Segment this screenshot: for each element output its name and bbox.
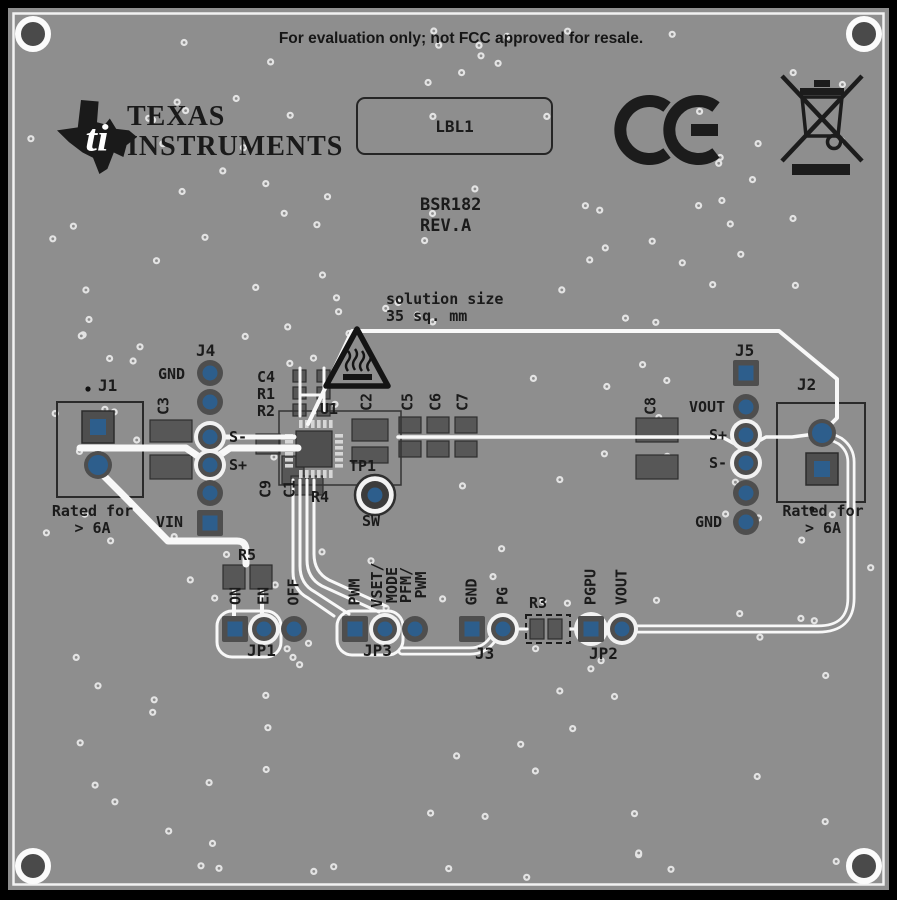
- pad-j5-s-minus: [730, 447, 762, 479]
- pad-j4-2: [197, 389, 223, 415]
- label-c1: C1: [283, 480, 298, 498]
- label-c9: C9: [259, 480, 274, 498]
- logo-wordmark-line2: INSTRUMENTS: [127, 131, 343, 163]
- pad-j4-s-plus: [194, 449, 226, 481]
- component-c8b: [636, 455, 678, 479]
- label-vout-row: VOUT: [615, 569, 630, 605]
- label-j5-vout: VOUT: [689, 399, 725, 416]
- label-j4-s-minus: S-: [229, 429, 247, 446]
- label-vin: VIN: [156, 514, 183, 531]
- pad-j4-vin: [197, 510, 223, 536]
- label-pgpu: PGPU: [584, 569, 599, 605]
- label-r4: R4: [311, 489, 329, 506]
- label-r5: R5: [238, 547, 256, 564]
- solution-size-note: solution size 35 sq. mm: [386, 291, 503, 325]
- label-j5: J5: [735, 342, 754, 359]
- pad-j4-s-minus: [194, 421, 226, 453]
- label-r3: R3: [529, 595, 547, 612]
- pad-j4-gnd: [197, 360, 223, 386]
- label-j5-s-plus: S+: [709, 427, 727, 444]
- label-c2: C2: [360, 393, 375, 411]
- component-r3: [530, 619, 544, 639]
- pad-j5-1: [733, 360, 759, 386]
- label-box: LBL1: [356, 97, 553, 155]
- label-tp1: TP1: [349, 458, 376, 475]
- pad-vout: [606, 613, 638, 645]
- label-r1: R1: [257, 386, 275, 403]
- board-rev: REV.A: [420, 218, 471, 235]
- pad-off: [281, 616, 307, 642]
- pad-pfm-pwm: [402, 616, 428, 642]
- board-name: BSR182: [420, 197, 481, 214]
- label-j4: J4: [196, 342, 215, 359]
- rated-for-left: Rated for > 6A: [40, 503, 145, 537]
- pad-gnd: [459, 616, 485, 642]
- label-jp2: JP2: [589, 645, 618, 662]
- pad-j5-5: [733, 480, 759, 506]
- pad-pwm: [342, 616, 368, 642]
- pcb-board: ti For evaluation only; not FCC approved…: [0, 0, 897, 900]
- component-c3a: [150, 420, 192, 442]
- testpoint-sw: [355, 475, 395, 515]
- pad-j5-vout: [733, 394, 759, 420]
- label-gnd-row: GND: [465, 578, 480, 605]
- component-c7: [455, 417, 477, 433]
- eval-notice: For evaluation only; not FCC approved fo…: [40, 30, 882, 48]
- pad-on: [222, 616, 248, 642]
- component-c2: [352, 419, 388, 441]
- label-u1: U1: [320, 401, 338, 418]
- label-j4-s-plus: S+: [229, 457, 247, 474]
- j1-pin1-dot: [85, 386, 90, 391]
- pad-j5-s-plus: [730, 419, 762, 451]
- label-pwm: PWM: [348, 578, 363, 605]
- label-jp1: JP1: [247, 642, 276, 659]
- label-pfm-pwm: PFM/ PWM: [399, 567, 429, 603]
- label-jp3: JP3: [363, 642, 392, 659]
- label-j2: J2: [797, 376, 816, 393]
- ti-bug-letters: ti: [85, 116, 108, 159]
- label-c7: C7: [456, 393, 471, 411]
- label-on: ON: [229, 587, 244, 605]
- label-j3: J3: [475, 645, 494, 662]
- mounting-hole-bottom-left: [18, 851, 48, 881]
- label-j5-s-minus: S-: [709, 455, 727, 472]
- label-r2: R2: [257, 403, 275, 420]
- label-j4-gnd: GND: [158, 366, 185, 383]
- logo-wordmark-line1: TEXAS: [127, 101, 225, 133]
- label-j1: J1: [98, 377, 117, 394]
- label-j5-gnd: GND: [695, 514, 722, 531]
- rated-for-right: Rated for > 6A: [773, 503, 873, 537]
- pad-j5-gnd: [733, 509, 759, 535]
- label-c8: C8: [644, 397, 659, 415]
- label-c4: C4: [257, 369, 275, 386]
- label-off: OFF: [287, 578, 302, 605]
- label-box-text: LBL1: [435, 117, 474, 136]
- pad-j4-5: [197, 480, 223, 506]
- label-c3: C3: [157, 397, 172, 415]
- component-c5: [399, 417, 421, 433]
- component-c3b: [150, 455, 192, 479]
- component-r5: [223, 565, 245, 589]
- label-en: EN: [257, 587, 272, 605]
- pad-pg: [487, 613, 519, 645]
- mounting-hole-bottom-right: [849, 851, 879, 881]
- label-c5: C5: [401, 393, 416, 411]
- component-c6: [427, 417, 449, 433]
- label-sw: SW: [362, 513, 380, 530]
- pad-pgpu: [574, 612, 608, 646]
- label-pg: PG: [496, 587, 511, 605]
- label-vset-mode: VSET/ MODE: [370, 562, 400, 607]
- label-c6: C6: [429, 393, 444, 411]
